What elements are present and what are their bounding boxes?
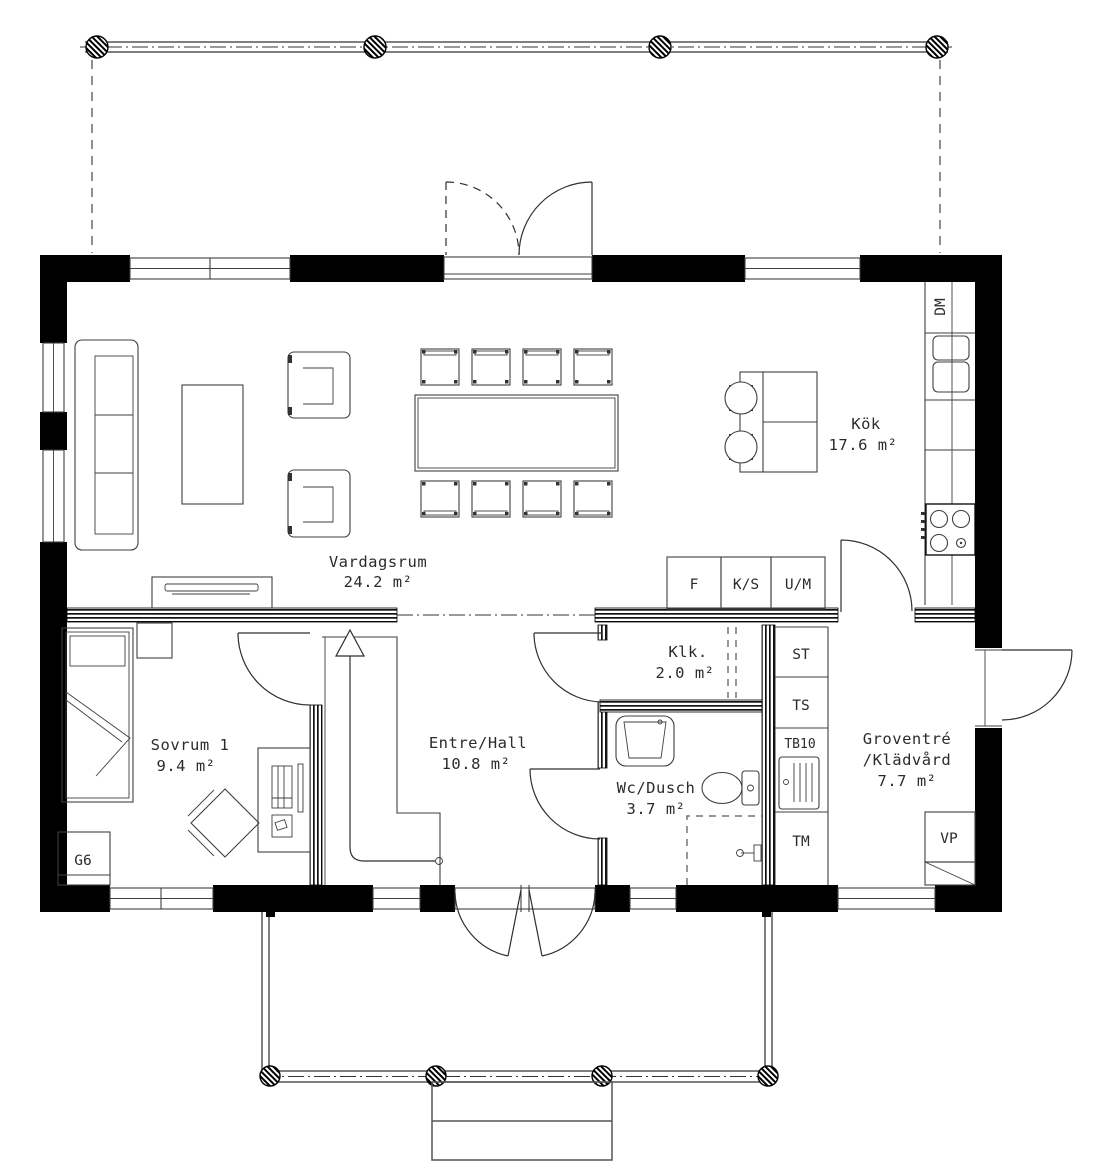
porch-column — [426, 1066, 446, 1086]
porch-column — [592, 1066, 612, 1086]
kitchen-groventre-door — [841, 540, 912, 612]
armchair — [288, 352, 350, 418]
ts-label: TS — [792, 698, 809, 714]
toilet — [702, 771, 759, 805]
porch-column — [260, 1066, 280, 1086]
room-label-groventre: Groventré — [863, 730, 952, 748]
pergola-column — [926, 36, 948, 58]
dining-chair — [472, 349, 510, 385]
window-top-right — [745, 258, 860, 279]
pergola-column — [649, 36, 671, 58]
room-area-klk: 2.0 m² — [656, 664, 715, 682]
room-label-klk: Klk. — [668, 643, 707, 661]
window-bottom-wc — [630, 888, 676, 909]
room-label-wc: Wc/Dusch — [617, 779, 696, 797]
floorplan-page: DM F K/S U/M ST TS TB10 TM — [0, 0, 1100, 1174]
floorplan-drawing: DM F K/S U/M ST TS TB10 TM — [0, 0, 1100, 1174]
top-pergola — [80, 36, 952, 253]
dining-chair — [574, 481, 612, 517]
entrance-double-door — [455, 885, 595, 956]
terrace-double-door — [444, 182, 592, 279]
kitchen-sink — [933, 336, 969, 392]
room-label-sovrum1: Sovrum 1 — [151, 736, 230, 754]
nightstand — [137, 623, 172, 658]
stair-direction-arrow — [336, 630, 364, 656]
stair-walk-line — [350, 656, 436, 861]
stool — [725, 382, 757, 414]
bottom-porch — [260, 912, 778, 1160]
cooktop — [921, 504, 975, 555]
desk — [258, 748, 310, 852]
staircase — [322, 630, 443, 885]
bed — [62, 628, 133, 802]
dining-chair — [421, 349, 459, 385]
tall-cabinets: F K/S U/M — [667, 557, 825, 609]
klk-door — [534, 633, 602, 702]
armchair — [288, 470, 350, 537]
window-bottom-stair — [373, 888, 420, 909]
dining-chair — [472, 481, 510, 517]
room-area-kok: 17.6 m² — [829, 436, 898, 454]
room-label-kok: Kök — [851, 415, 881, 433]
room-label-entre: Entre/Hall — [429, 734, 527, 752]
room-area-entre: 10.8 m² — [442, 755, 511, 773]
pillow — [70, 636, 125, 666]
sofa — [75, 340, 138, 550]
dining-chair — [523, 349, 561, 385]
shower-mixer — [737, 845, 762, 861]
pergola-column — [364, 36, 386, 58]
fridge-label: F — [690, 577, 699, 593]
room-area-sovrum1: 9.4 m² — [157, 757, 216, 775]
dining-set — [415, 349, 618, 517]
oven-micro-label: U/M — [785, 577, 811, 593]
room-label-vardagsrum: Vardagsrum — [329, 553, 427, 571]
porch-column — [758, 1066, 778, 1086]
wc-door — [530, 769, 600, 839]
kitchen-table — [725, 372, 817, 472]
window-left-lower — [43, 450, 64, 542]
desk-chair — [188, 789, 259, 857]
window-bottom-groventre — [838, 888, 935, 909]
room-label-groventre2: /Klädvård — [863, 751, 952, 769]
dining-chair — [421, 481, 459, 517]
pergola-column — [86, 36, 108, 58]
dining-chair — [523, 481, 561, 517]
tb10-appliance — [779, 757, 819, 809]
g6-label: G6 — [74, 853, 91, 869]
dining-chair — [574, 349, 612, 385]
bedroom-door — [238, 633, 310, 705]
room-area-wc: 3.7 m² — [627, 800, 686, 818]
exterior-walls — [40, 255, 1002, 912]
room-area-vardagsrum: 24.2 m² — [344, 573, 413, 591]
tm-label: TM — [792, 834, 810, 850]
dishwasher-label: DM — [933, 298, 949, 316]
tb10-label: TB10 — [784, 737, 815, 752]
bathroom-sink — [616, 716, 674, 766]
st-label: ST — [792, 647, 810, 663]
coffee-table — [182, 385, 243, 504]
room-area-groventre: 7.7 m² — [878, 772, 937, 790]
tv-bench — [152, 577, 272, 608]
window-bottom-bedroom — [110, 888, 213, 909]
cool-store-label: K/S — [733, 577, 759, 593]
window-top-left — [130, 258, 290, 279]
vp-label: VP — [940, 831, 958, 847]
groventre-exterior-door — [975, 650, 1072, 726]
laundry-closets: ST TS TB10 TM — [775, 627, 828, 885]
entrance-steps — [432, 1082, 612, 1160]
stool — [725, 431, 757, 463]
window-left-upper — [43, 343, 64, 412]
heat-pump-vp: VP — [925, 812, 975, 885]
kitchen-counter: DM — [921, 282, 975, 605]
shower-area — [687, 816, 762, 885]
